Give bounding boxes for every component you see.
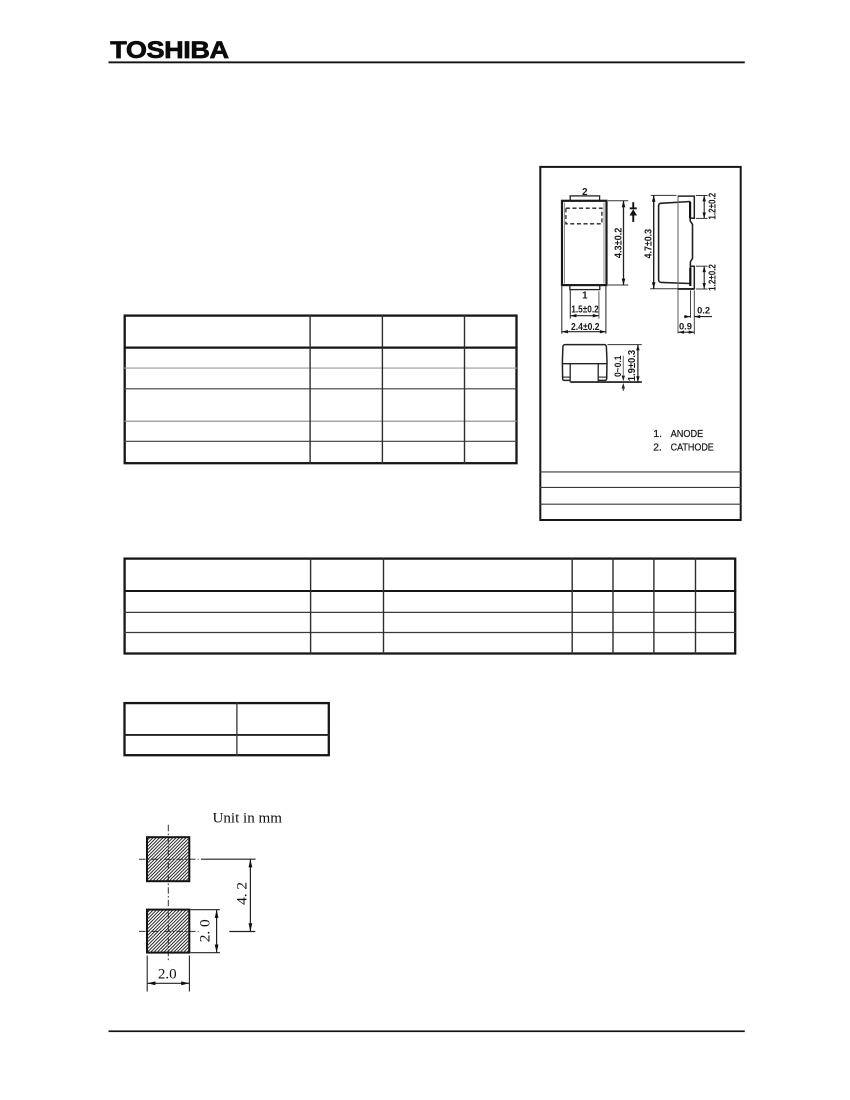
svg-text:CATHODE: CATHODE [671,442,714,453]
svg-text:Unit in mm: Unit in mm [213,810,283,827]
svg-text:2: 2 [582,187,588,198]
svg-text:1.2±0.2: 1.2±0.2 [707,193,718,220]
svg-text:0.9: 0.9 [679,320,692,331]
svg-text:0~0.1: 0~0.1 [613,356,623,378]
svg-text:4.3±0.2: 4.3±0.2 [613,228,624,258]
svg-text:1.5±0.2: 1.5±0.2 [571,305,599,316]
svg-text:4.7±0.3: 4.7±0.3 [643,228,654,258]
svg-text:TOSHIBA: TOSHIBA [110,37,229,64]
svg-text:1: 1 [582,290,588,301]
svg-text:4. 2: 4. 2 [235,882,251,905]
svg-text:1.2±0.2: 1.2±0.2 [707,264,718,291]
svg-text:2. 0: 2. 0 [198,919,214,942]
svg-text:1.: 1. [653,429,662,440]
svg-text:1.9±0.3: 1.9±0.3 [627,349,638,381]
svg-text:0.2: 0.2 [697,305,710,316]
svg-text:2.: 2. [653,442,662,453]
svg-text:2.0: 2.0 [158,966,177,982]
svg-text:ANODE: ANODE [671,429,704,440]
